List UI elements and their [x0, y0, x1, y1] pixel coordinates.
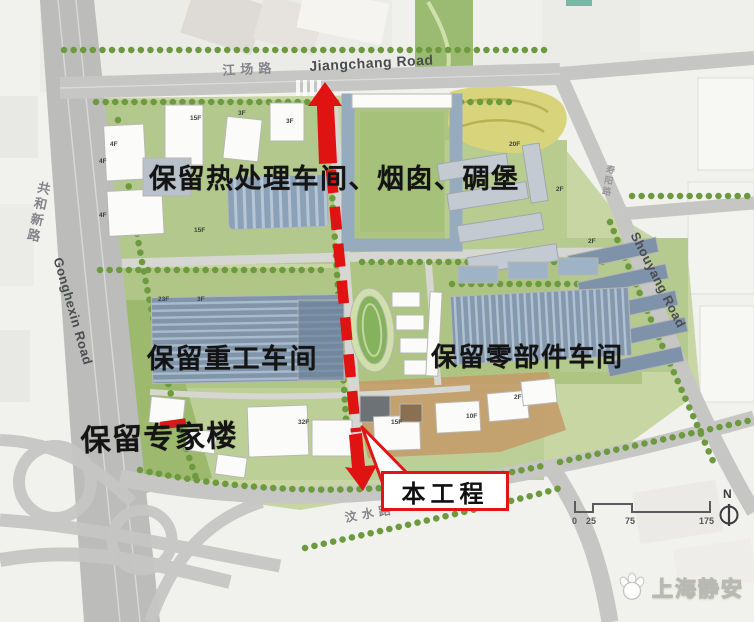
- floor-label: 2F: [588, 238, 596, 245]
- floor-label: 10F: [466, 413, 477, 420]
- scale-tick-75: 75: [625, 517, 635, 526]
- floor-label: 15F: [190, 115, 201, 122]
- jingan-logo: 上海静安: [616, 572, 744, 604]
- logo-text: 上海静安: [652, 573, 744, 603]
- floor-label: 3F: [197, 296, 205, 303]
- floor-label: 15F: [194, 227, 205, 234]
- scale-tick-25: 25: [586, 517, 596, 526]
- floor-label: 2F: [556, 186, 564, 193]
- site-plan-figure: 江场路 Jiangchang Road 共和新路 Gonghexin Road …: [0, 0, 754, 622]
- floor-label: 4F: [99, 212, 107, 219]
- floor-label: 20F: [509, 141, 520, 148]
- floor-label: 4F: [99, 158, 107, 165]
- floor-label: 4F: [110, 141, 118, 148]
- floor-label: 2F: [514, 394, 522, 401]
- north-label: N: [723, 488, 732, 500]
- floor-label: 3F: [238, 110, 246, 117]
- magnolia-flower-icon: [616, 572, 648, 604]
- floor-label: 32F: [298, 419, 309, 426]
- floor-label: 23F: [158, 296, 169, 303]
- scale-tick-175: 175: [699, 517, 714, 526]
- floor-labels-layer: 4F15F3F3F4F4F15F23F3F32F15F10F2F20F2F2F: [0, 0, 754, 622]
- floor-label: 15F: [391, 419, 402, 426]
- floor-label: 3F: [286, 118, 294, 125]
- scale-tick-0: 0: [572, 517, 577, 526]
